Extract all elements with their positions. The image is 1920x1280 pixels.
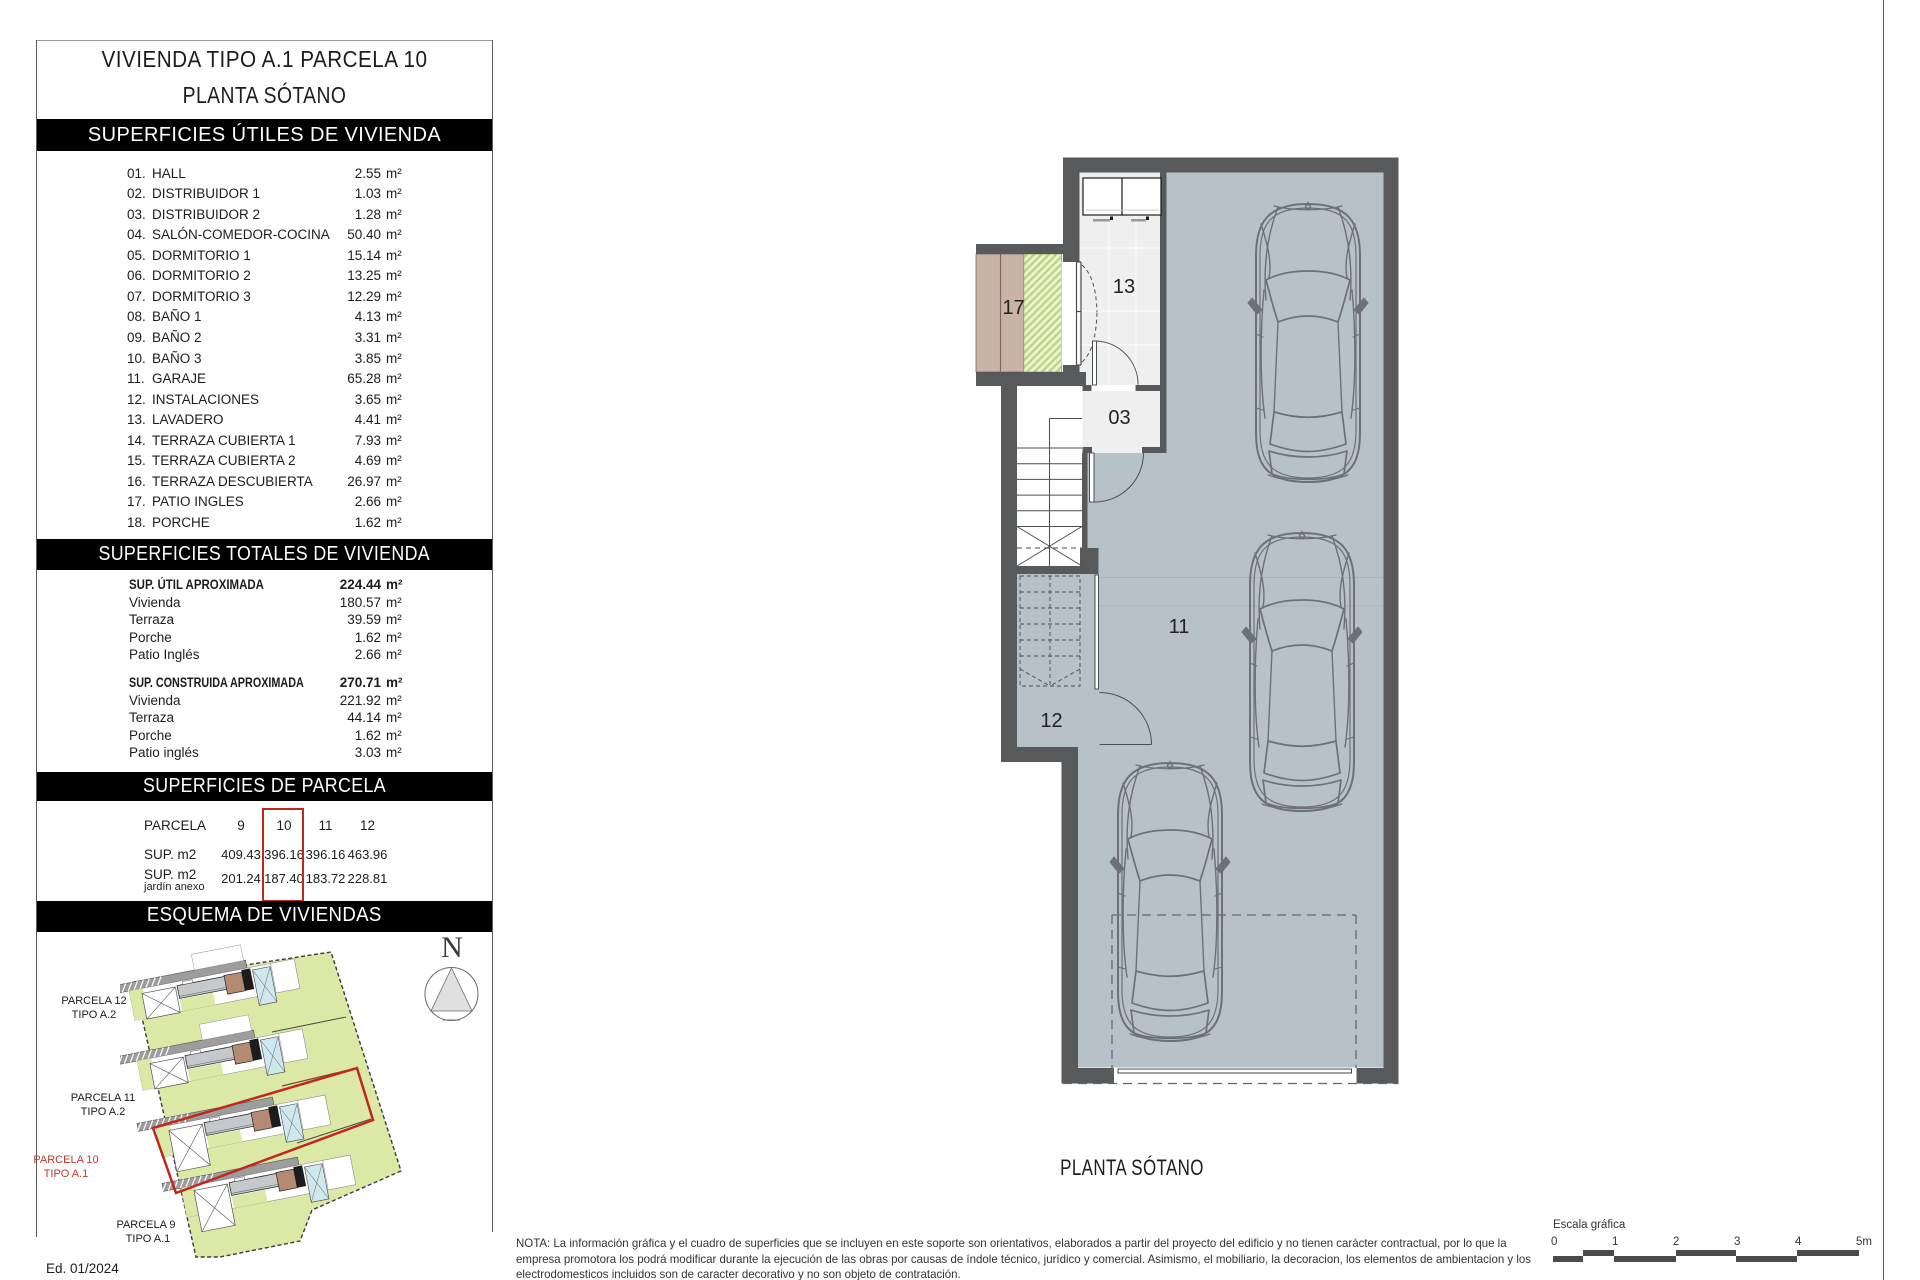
- svg-text:N: N: [441, 931, 463, 964]
- svg-text:13: 13: [1113, 276, 1135, 298]
- svg-text:03: 03: [1108, 407, 1130, 429]
- svg-text:11: 11: [1169, 616, 1190, 638]
- svg-text:12: 12: [1040, 710, 1062, 732]
- svg-text:17: 17: [1002, 297, 1024, 319]
